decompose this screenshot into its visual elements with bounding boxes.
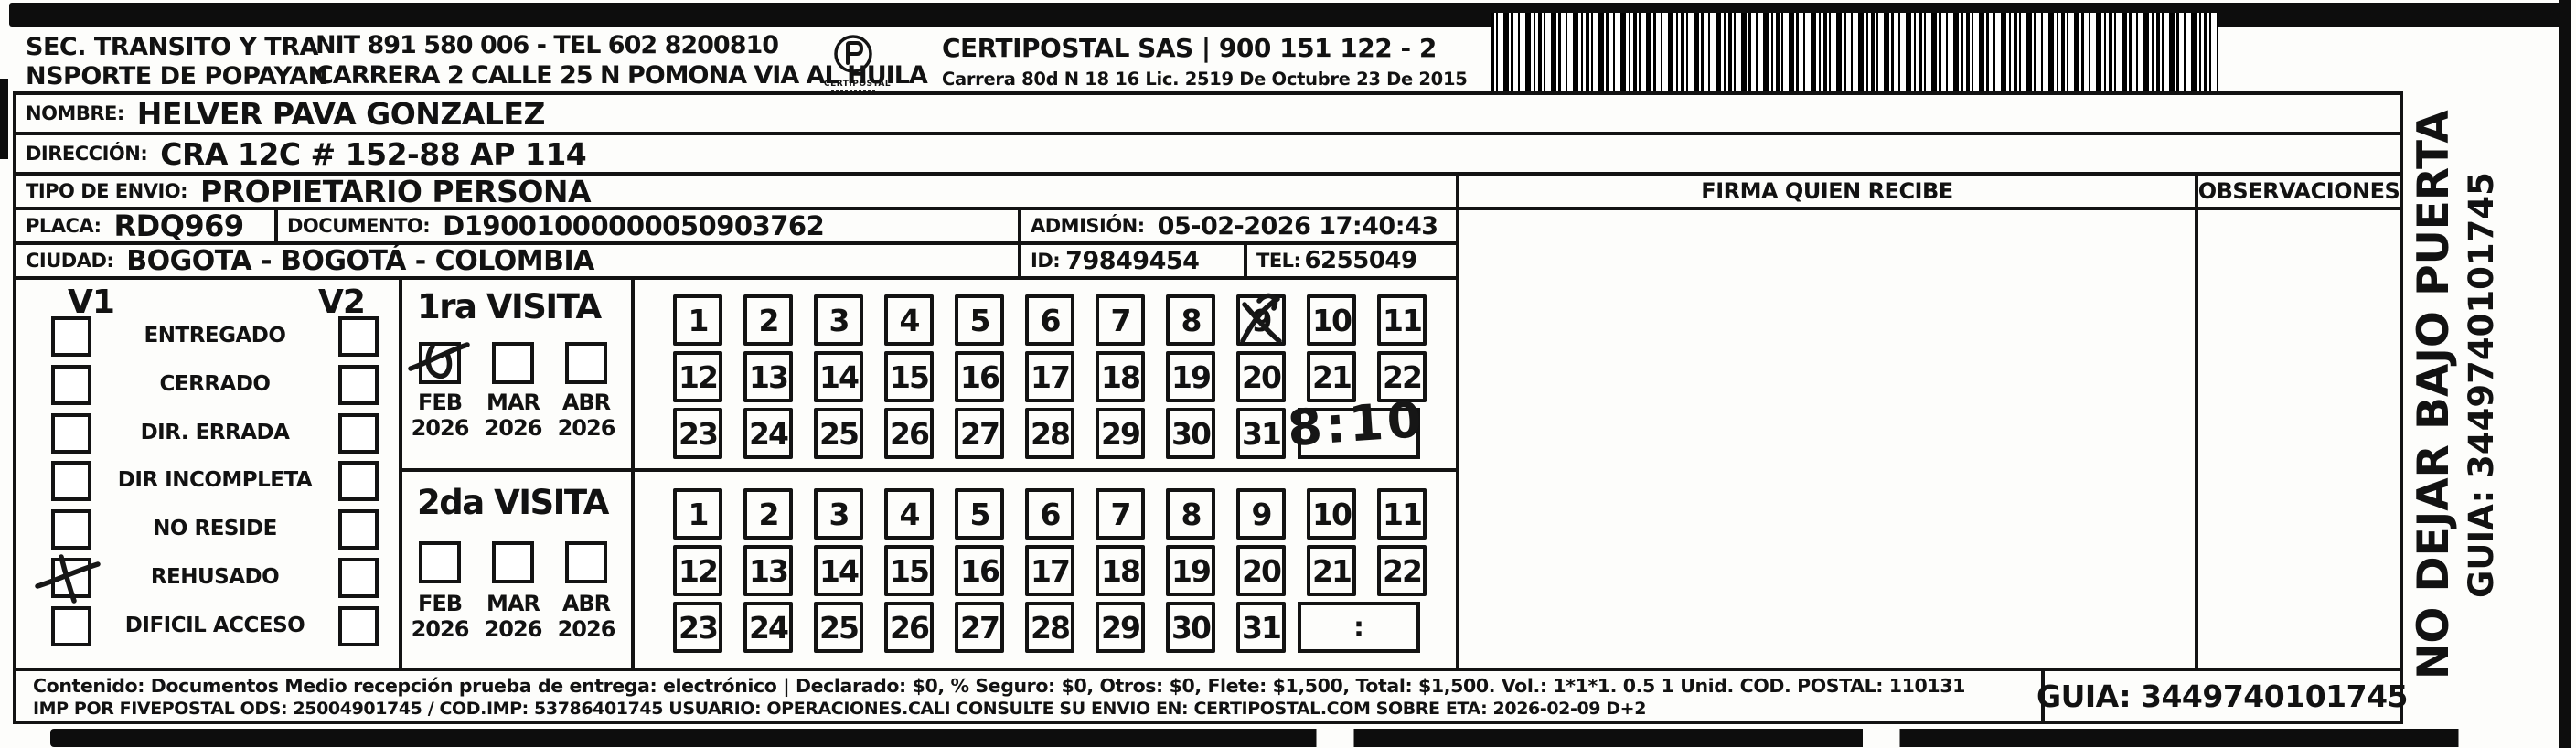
visita1-day-13: 13 [743,351,793,402]
v1-checkbox-dir-errada [51,413,91,454]
visita1-day-3: 3 [814,294,863,346]
visita2-day-17: 17 [1025,545,1074,596]
visita1-year-label: 2026 [556,415,616,441]
visita2-day-25: 25 [814,602,863,653]
observaciones-area [2195,207,2403,671]
visita2-day-23: 23 [673,602,722,653]
visita1-day-10: 10 [1307,294,1356,346]
guia-cell: GUIA: 3449740101745 [2041,668,2403,724]
visita2-day-12: 12 [673,545,722,596]
v2-checkbox-dificil-acceso [338,606,379,646]
admision-value: 05-02-2026 17:40:43 [1158,212,1438,240]
visita2-day-24: 24 [743,602,793,653]
status-option-label: CERRADO [97,372,333,396]
status-option-label: REHUSADO [97,565,333,589]
visita1-day-29: 29 [1096,408,1145,459]
visita1-day-24: 24 [743,408,793,459]
visita1-month-checkbox-feb [419,342,461,384]
visita2-day-3: 3 [814,488,863,540]
visita2-day-1: 1 [673,488,722,540]
v2-checkbox-dir-errada [338,413,379,454]
visita2-panel: 2da VISITA FEB2026MAR2026ABR2026 [399,468,635,671]
visita2-day-22: 22 [1377,545,1427,596]
visita2-day-8: 8 [1166,488,1215,540]
handwritten-check-mark [50,557,91,597]
nombre-row: NOMBRE: HELVER PAVA GONZALEZ [13,91,2403,135]
visita2-day-4: 4 [884,488,934,540]
status-option-label: DIR. ERRADA [97,421,333,444]
visita1-month-label: ABR [556,390,616,415]
visita1-month-label: FEB [410,390,470,415]
logo-caption: CERTIPOSTAL [824,80,882,89]
visita1-day-7: 7 [1096,294,1145,346]
visita2-day-21: 21 [1307,545,1356,596]
company-name: CERTIPOSTAL SAS | 900 151 122 - 2 [942,33,1468,63]
placa-label: PLACA: [26,215,101,237]
visita2-day-29: 29 [1096,602,1145,653]
contenido-line: Contenido: Documentos Medio recepción pr… [33,675,1965,697]
visita1-day-26: 26 [884,408,934,459]
firma-signature-area [1456,207,2198,671]
visita2-year-label: 2026 [483,616,543,642]
visita1-day-15: 15 [884,351,934,402]
visita2-month-checkbox-abr [565,541,607,583]
imp-line: IMP POR FIVEPOSTAL ODS: 25004901745 / CO… [33,699,1646,719]
visita1-day-1: 1 [673,294,722,346]
v1-checkbox-dificil-acceso [51,606,91,646]
visita1-day-grid: 1234567891011121314151617181920212223242… [631,276,1459,472]
visita1-month-label: MAR [483,390,543,415]
visita1-day-25: 25 [814,408,863,459]
observaciones-label: OBSERVACIONES [2198,178,2400,204]
visita1-day-9: 9 [1236,294,1286,346]
guia-barcode [1491,13,2218,91]
id-label: ID: [1031,250,1060,272]
visita2-day-19: 19 [1166,545,1215,596]
visita2-day-16: 16 [955,545,1004,596]
visita2-day-26: 26 [884,602,934,653]
id-cell: ID: 79849454 [1018,241,1247,280]
scan-right-bar [2559,0,2571,748]
visita1-day-20: 20 [1236,351,1286,402]
visita2-year-label: 2026 [556,616,616,642]
visita2-day-10: 10 [1307,488,1356,540]
visita1-day-30: 30 [1166,408,1215,459]
visita2-day-14: 14 [814,545,863,596]
visita2-month-checkbox-mar [492,541,534,583]
sender-line2: NSPORTE DE POPAYAN [26,62,328,91]
visita2-day-27: 27 [955,602,1004,653]
direccion-label: DIRECCIÓN: [26,143,147,165]
visita1-year-label: 2026 [483,415,543,441]
v2-checkbox-cerrado [338,365,379,405]
v1-checkbox-no-reside [51,509,91,550]
sender-line1: SEC. TRANSITO Y TRA [26,33,328,62]
scan-left-artifact [0,79,8,159]
v1-checkbox-dir-incompleta [51,461,91,501]
v2-checkbox-entregado [338,316,379,357]
ciudad-value: BOGOTA - BOGOTÁ - COLOMBIA [126,245,594,277]
visita2-year-label: 2026 [410,616,470,642]
visita1-day-4: 4 [884,294,934,346]
id-value: 79849454 [1065,247,1199,275]
visita1-day-23: 23 [673,408,722,459]
side-notice-no-dejar: NO DEJAR BAJO PUERTA [2409,99,2462,691]
handwritten-check-mark [418,341,460,383]
admision-cell: ADMISIÓN: 05-02-2026 17:40:43 [1018,207,1459,245]
status-option-label: ENTREGADO [97,324,333,347]
visita1-handwritten-time: 8:10 [1286,390,1427,457]
v2-checkbox-dir-incompleta [338,461,379,501]
v2-column-title: V2 [318,283,365,321]
status-option-label: DIFICIL ACCESO [97,614,333,637]
documento-label: DOCUMENTO: [287,215,430,237]
visita2-month-label: FEB [410,591,470,616]
status-option-label: NO RESIDE [97,517,333,540]
certipostal-logo: CERTIPOSTAL [824,33,882,93]
visita2-day-2: 2 [743,488,793,540]
time-colon: : [1353,612,1364,644]
visita1-title: 1ra VISITA [417,287,601,326]
scan-bottom-bar [50,729,2533,747]
visita1-day-8: 8 [1166,294,1215,346]
direccion-value: CRA 12C # 152-88 AP 114 [160,136,586,172]
visita2-day-28: 28 [1025,602,1074,653]
visita2-day-9: 9 [1236,488,1286,540]
placa-value: RDQ969 [113,208,243,243]
visita2-day-7: 7 [1096,488,1145,540]
visita1-day-17: 17 [1025,351,1074,402]
visita2-day-31: 31 [1236,602,1286,653]
firma-label: FIRMA QUIEN RECIBE [1701,178,1952,204]
shipping-label-scan: SEC. TRANSITO Y TRA NSPORTE DE POPAYAN N… [0,0,2576,748]
observaciones-header: OBSERVACIONES [2195,172,2403,210]
visita1-day-6: 6 [1025,294,1074,346]
v1-checkbox-rehusado [51,558,91,598]
handwritten-check-mark [1235,294,1285,345]
visita1-day-14: 14 [814,351,863,402]
visita1-day-16: 16 [955,351,1004,402]
company-info: Carrera 80d N 18 16 Lic. 2519 De Octubre… [942,69,1468,90]
visita1-day-27: 27 [955,408,1004,459]
visita1-day-2: 2 [743,294,793,346]
v2-checkbox-no-reside [338,509,379,550]
v1-checkbox-entregado [51,316,91,357]
tipo-envio-label: TIPO DE ENVIO: [26,180,187,202]
visita1-month-checkbox-mar [492,342,534,384]
visita1-day-5: 5 [955,294,1004,346]
placa-cell: PLACA: RDQ969 [13,207,278,245]
side-notice-guia: GUIA: 3449740101745 [2462,126,2504,644]
direccion-row: DIRECCIÓN: CRA 12C # 152-88 AP 114 [13,132,2403,176]
visita1-panel: 1ra VISITA FEB2026MAR2026ABR2026 [399,276,635,472]
visita2-day-5: 5 [955,488,1004,540]
company-block: CERTIPOSTAL SAS | 900 151 122 - 2 Carrer… [942,33,1468,90]
firma-header: FIRMA QUIEN RECIBE [1456,172,2198,210]
visita2-day-11: 11 [1377,488,1427,540]
visita1-day-19: 19 [1166,351,1215,402]
tel-label: TEL: [1256,250,1300,272]
v1-checkbox-cerrado [51,365,91,405]
visita2-month-checkbox-feb [419,541,461,583]
documento-value: D19001000000050903762 [443,210,824,241]
visita1-day-31: 31 [1236,408,1286,459]
visita2-day-grid: 1234567891011121314151617181920212223242… [631,468,1459,671]
nombre-label: NOMBRE: [26,102,124,124]
visita2-time-box: : [1298,602,1420,653]
tipo-envio-value: PROPIETARIO PERSONA [200,174,591,209]
ciudad-cell: CIUDAD: BOGOTA - BOGOTÁ - COLOMBIA [13,241,1021,280]
visita2-day-15: 15 [884,545,934,596]
guia-value: GUIA: 3449740101745 [2036,679,2408,714]
visita2-title: 2da VISITA [417,483,608,522]
nombre-value: HELVER PAVA GONZALEZ [137,96,545,132]
visita1-day-18: 18 [1096,351,1145,402]
certipostal-logo-icon [832,33,874,75]
visita1-day-12: 12 [673,351,722,402]
visita1-day-11: 11 [1377,294,1427,346]
delivery-status-panel: V1 V2 ENTREGADOCERRADODIR. ERRADADIR INC… [13,276,402,671]
visita2-month-label: MAR [483,591,543,616]
tel-cell: TEL: 6255049 [1244,241,1459,280]
visita2-month-label: ABR [556,591,616,616]
sender-name: SEC. TRANSITO Y TRA NSPORTE DE POPAYAN [26,33,328,92]
status-option-label: DIR INCOMPLETA [97,468,333,492]
visita1-day-28: 28 [1025,408,1074,459]
contenido-footer-cell: Contenido: Documentos Medio recepción pr… [13,668,2045,724]
visita1-month-checkbox-abr [565,342,607,384]
visita2-day-18: 18 [1096,545,1145,596]
v2-checkbox-rehusado [338,558,379,598]
visita2-day-6: 6 [1025,488,1074,540]
ciudad-label: CIUDAD: [26,250,113,272]
v1-column-title: V1 [68,283,114,321]
visita2-day-13: 13 [743,545,793,596]
visita2-day-30: 30 [1166,602,1215,653]
visita2-day-20: 20 [1236,545,1286,596]
tel-value: 6255049 [1304,247,1416,274]
tipo-envio-row: TIPO DE ENVIO: PROPIETARIO PERSONA [13,172,1459,210]
visita1-year-label: 2026 [410,415,470,441]
admision-label: ADMISIÓN: [1031,215,1145,237]
documento-cell: DOCUMENTO: D19001000000050903762 [274,207,1021,245]
